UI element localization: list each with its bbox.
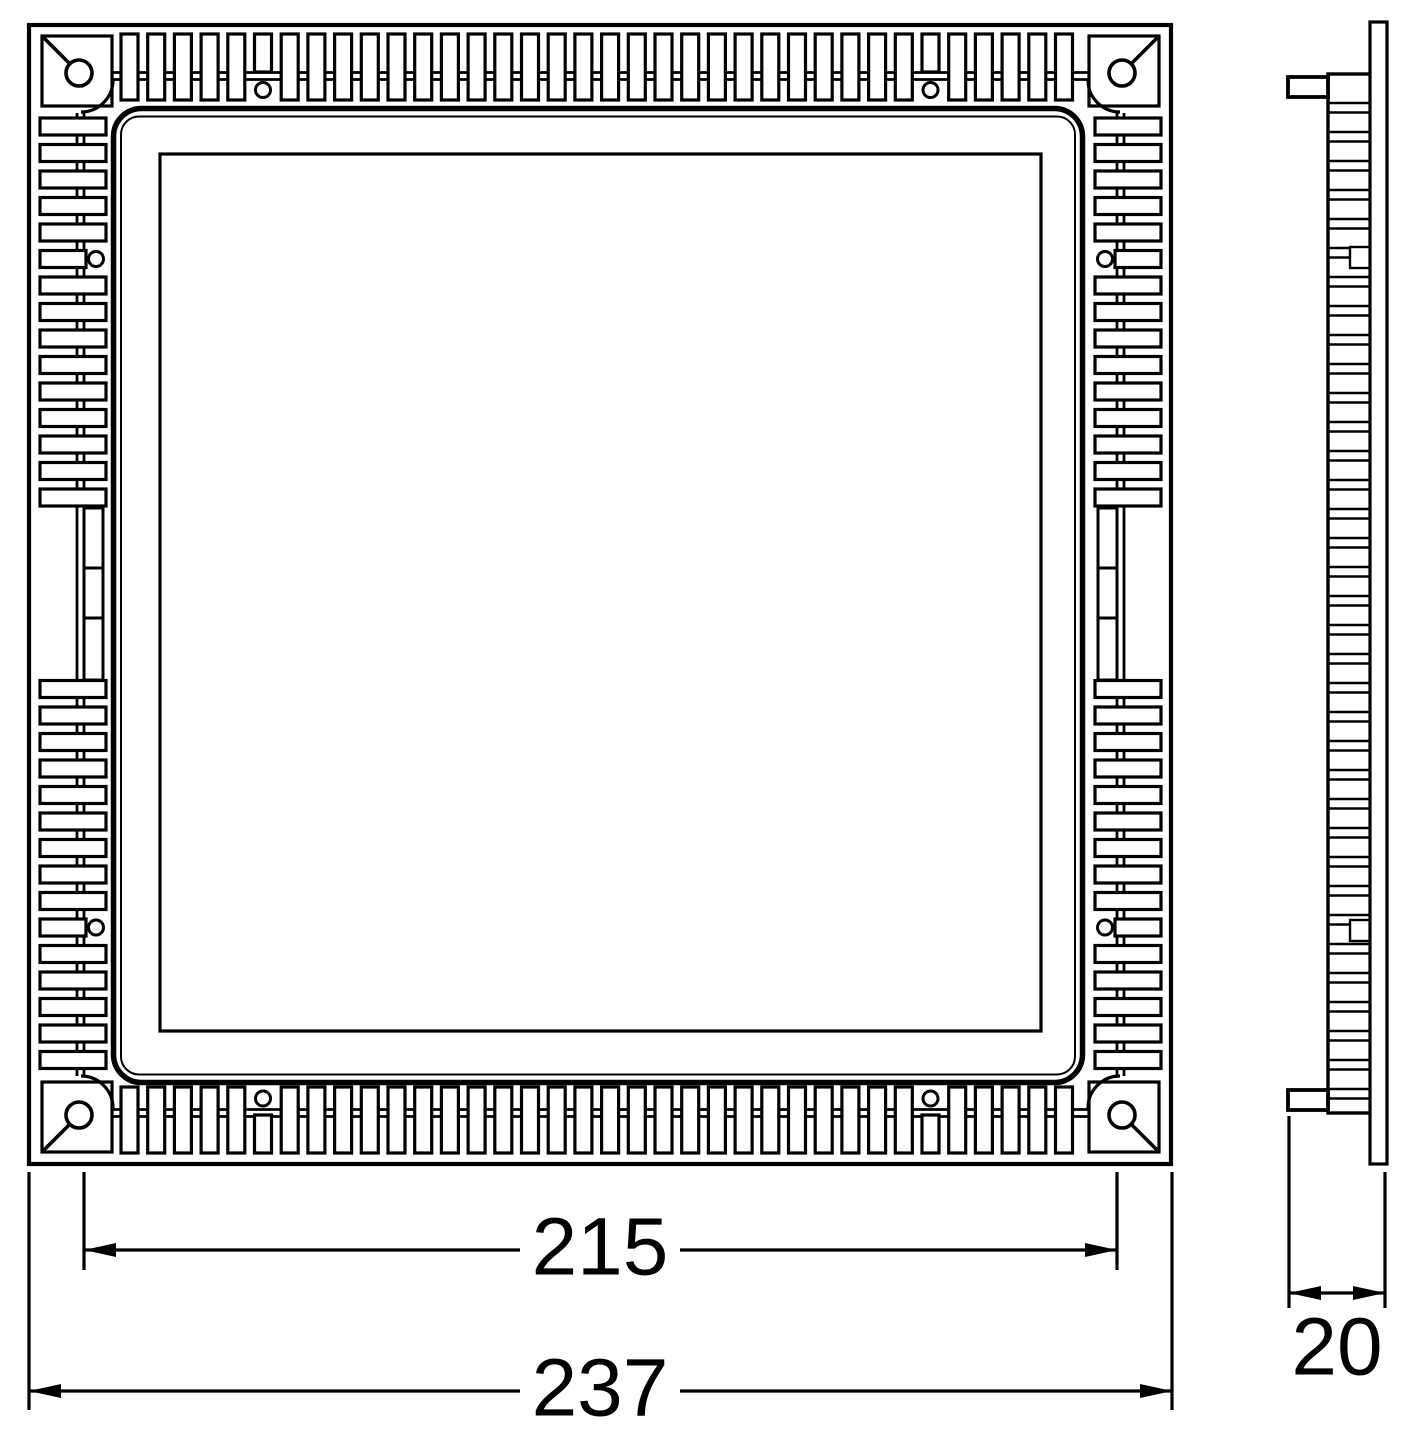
spring-fin-tooth [40, 304, 106, 321]
spring-fin-tooth [869, 1087, 886, 1153]
spring-fin-tooth [281, 1087, 298, 1153]
spring-fin-tooth [40, 787, 106, 804]
spring-fin-tooth [1095, 999, 1161, 1016]
spring-fin-tooth [895, 34, 912, 100]
spring-fin-tooth [388, 34, 405, 100]
spring-fin-tooth [628, 1087, 645, 1153]
screw-hole [1098, 252, 1113, 267]
spring-fin-tooth [1095, 1052, 1161, 1069]
spring-fin-tooth [40, 1052, 106, 1069]
spring-fin-tooth [789, 34, 806, 100]
spring-fin-tooth [1095, 198, 1161, 215]
spring-fin-tooth [895, 1087, 912, 1153]
spring-fin-tooth [735, 1087, 752, 1153]
mounting-tab-top [1288, 77, 1328, 97]
right-channel [1098, 508, 1117, 680]
side-view [1288, 22, 1387, 1164]
spring-fin-tooth [522, 1087, 539, 1153]
spring-fin-tooth-short [922, 1115, 939, 1153]
spring-fin-tooth [1095, 760, 1161, 777]
spring-fin-tooth [468, 34, 485, 100]
spring-fin-tooth [1095, 171, 1161, 188]
spring-fin-tooth [789, 1087, 806, 1153]
spring-fin-tooth [40, 198, 106, 215]
spring-fin-tooth [1095, 787, 1161, 804]
spring-fin-tooth [1095, 304, 1161, 321]
spring-fin-tooth-short [922, 34, 939, 72]
spring-fin-tooth [308, 34, 325, 100]
spring-fin-tooth [174, 34, 191, 100]
spring-fin-tooth [1095, 707, 1161, 724]
spring-fin-tooth [148, 1087, 165, 1153]
spring-fin-tooth-short [1115, 251, 1161, 268]
spring-fin-tooth [1095, 840, 1161, 857]
spring-fin-tooth [121, 1087, 138, 1153]
clip-pivot [66, 1102, 92, 1128]
spring-fin-tooth [1095, 734, 1161, 751]
spring-fin-tooth [40, 463, 106, 480]
spring-fin-tooth [815, 34, 832, 100]
spring-fin-tooth [1095, 277, 1161, 294]
spring-fin-tooth [40, 171, 106, 188]
spring-fin-tooth [1029, 34, 1046, 100]
spring-fin-tooth [1095, 410, 1161, 427]
spring-fin-tooth [335, 1087, 352, 1153]
panel-face-profile [1370, 22, 1387, 1164]
heatsink-body-profile [1328, 74, 1371, 1113]
spring-fin-tooth [575, 1087, 592, 1153]
spring-fin-tooth [40, 972, 106, 989]
spring-fin-tooth [201, 34, 218, 100]
spring-fin-tooth [1002, 1087, 1019, 1153]
spring-fin-tooth [1095, 357, 1161, 374]
spring-fin-tooth [655, 1087, 672, 1153]
arrowhead-outer-left [29, 1384, 61, 1398]
screw-hole [89, 920, 104, 935]
spring-fin-tooth [1095, 463, 1161, 480]
spring-fin-tooth [975, 34, 992, 100]
corner-clip-top-right [1088, 36, 1159, 112]
spring-fin-tooth [522, 34, 539, 100]
spring-fin-tooth [655, 34, 672, 100]
spring-fin-tooth [735, 34, 752, 100]
spring-fin-tooth [441, 34, 458, 100]
spring-fin-tooth [1095, 946, 1161, 963]
spring-fin-tooth [40, 118, 106, 135]
spring-fin-tooth [602, 1087, 619, 1153]
clip-pivot [66, 60, 92, 86]
spring-fin-tooth [228, 34, 245, 100]
spring-fin-tooth-short [255, 34, 272, 72]
spring-fin-tooth [548, 1087, 565, 1153]
arrowhead-depth-left [1289, 1286, 1321, 1300]
spring-fin-tooth [1095, 224, 1161, 241]
spring-fin-tooth [361, 1087, 378, 1153]
spring-fin-tooth [40, 840, 106, 857]
left-channel [84, 508, 103, 680]
screw-hole [1098, 920, 1113, 935]
spring-fin-tooth [441, 1087, 458, 1153]
spring-fin-tooth [121, 34, 138, 100]
spring-fin-tooth [949, 34, 966, 100]
spring-fin-tooth [40, 760, 106, 777]
spring-fin-tooth [415, 34, 432, 100]
spring-fin-tooth [468, 1087, 485, 1153]
spring-fin-tooth [40, 410, 106, 427]
spring-fin-tooth [40, 489, 106, 506]
corner-clip-bottom-right [1088, 1076, 1159, 1152]
spring-fin-tooth [40, 145, 106, 162]
spring-fin-tooth [762, 34, 779, 100]
spring-fin-tooth [1056, 1087, 1073, 1153]
spring-fin-tooth [575, 34, 592, 100]
clip-pivot [1109, 1102, 1135, 1128]
spring-fin-tooth [1002, 34, 1019, 100]
screw-hole [256, 83, 271, 98]
spring-fin-tooth [975, 1087, 992, 1153]
spring-fin-tooth [1095, 813, 1161, 830]
spring-fin-tooth [1095, 330, 1161, 347]
spring-fin-tooth [1095, 145, 1161, 162]
spring-fin-tooth [628, 34, 645, 100]
spring-fin-tooth [40, 999, 106, 1016]
spring-fin-tooth [281, 34, 298, 100]
spring-fin-tooth [762, 1087, 779, 1153]
spring-fin-tooth [815, 1087, 832, 1153]
spring-fin-tooth [361, 34, 378, 100]
technical-drawing: 215 237 20 [0, 0, 1413, 1433]
rib-notch [1350, 247, 1371, 268]
spring-fin-tooth [1095, 489, 1161, 506]
spring-fin-tooth [1095, 681, 1161, 698]
spring-fin-tooth [1029, 1087, 1046, 1153]
spring-fin-tooth-short [40, 919, 86, 936]
spring-fin-tooth [1095, 972, 1161, 989]
spring-fin-tooth [1095, 1025, 1161, 1042]
light-window [160, 154, 1041, 1031]
spring-fin-tooth [1095, 383, 1161, 400]
arrowhead-inner-right [1085, 1243, 1117, 1257]
dim-depth-label: 20 [1291, 1302, 1382, 1393]
spring-fin-tooth [842, 34, 859, 100]
spring-fin-tooth [869, 34, 886, 100]
spring-fin-tooth [40, 1025, 106, 1042]
spring-fin-tooth [682, 1087, 699, 1153]
spring-fin-tooth [682, 34, 699, 100]
spring-fin-tooth [201, 1087, 218, 1153]
spring-fin-tooth [415, 1087, 432, 1153]
spring-fin-tooth [308, 1087, 325, 1153]
spring-fin-tooth [40, 277, 106, 294]
rib-notch [1350, 920, 1371, 941]
spring-fin-tooth [40, 946, 106, 963]
screw-hole [923, 1091, 938, 1106]
corner-clip-bottom-left [42, 1076, 113, 1152]
drawing-canvas: 215 237 20 [0, 0, 1413, 1433]
spring-fin-tooth [1056, 34, 1073, 100]
spring-fin-tooth [495, 1087, 512, 1153]
spring-fin-tooth [708, 1087, 725, 1153]
spring-fin-tooth-short [40, 251, 86, 268]
spring-fin-tooth [602, 34, 619, 100]
spring-fin-tooth [1095, 436, 1161, 453]
spring-fin-tooth [40, 330, 106, 347]
screw-hole [923, 83, 938, 98]
dim-inner-label: 215 [532, 1202, 669, 1293]
arrowhead-outer-right [1140, 1384, 1172, 1398]
spring-fin-tooth [1095, 118, 1161, 135]
spring-fin-tooth [40, 734, 106, 751]
spring-fin-tooth [40, 357, 106, 374]
spring-fin-tooth [1095, 893, 1161, 910]
spring-fin-tooth [335, 34, 352, 100]
spring-fin-tooth [228, 1087, 245, 1153]
spring-fin-tooth [40, 383, 106, 400]
spring-fin-tooth-short [1115, 919, 1161, 936]
arrowhead-depth-right [1353, 1286, 1385, 1300]
dim-outer-label: 237 [532, 1343, 669, 1433]
spring-fin-tooth [148, 34, 165, 100]
front-view [29, 25, 1171, 1164]
spring-fin-tooth [388, 1087, 405, 1153]
spring-fin-tooth [40, 893, 106, 910]
mounting-tab-bottom [1288, 1090, 1328, 1110]
spring-fin-tooth [1095, 866, 1161, 883]
clip-pivot [1109, 60, 1135, 86]
screw-hole [256, 1091, 271, 1106]
arrowhead-inner-left [84, 1243, 116, 1257]
spring-fin-tooth [842, 1087, 859, 1153]
spring-fin-tooth [40, 681, 106, 698]
spring-fin-tooth [174, 1087, 191, 1153]
screw-hole [89, 252, 104, 267]
spring-fin-tooth [708, 34, 725, 100]
spring-fin-tooth-short [255, 1115, 272, 1153]
spring-fin-tooth [40, 436, 106, 453]
spring-fin-tooth [548, 34, 565, 100]
spring-fin-tooth [495, 34, 512, 100]
spring-fin-tooth [40, 707, 106, 724]
spring-fin-tooth [40, 224, 106, 241]
spring-fin-tooth [949, 1087, 966, 1153]
spring-fin-tooth [40, 866, 106, 883]
spring-fin-tooth [40, 813, 106, 830]
corner-clip-top-left [42, 36, 113, 112]
